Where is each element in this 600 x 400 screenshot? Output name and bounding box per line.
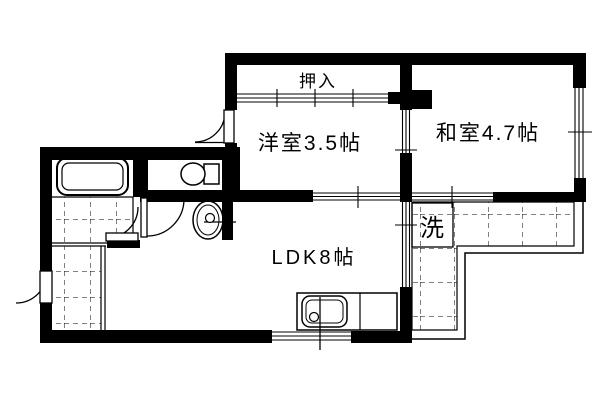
floorplan-svg: 押入 洋室3.5帖 和室4.7帖 LDK8帖 洗 <box>0 0 600 400</box>
room-label-closet: 押入 <box>299 72 337 91</box>
window-washitsu-east <box>568 88 592 178</box>
floorplan-page: 押入 洋室3.5帖 和室4.7帖 LDK8帖 洗 <box>0 0 600 400</box>
window-yoshitsu-south <box>313 186 400 208</box>
washroom-door <box>141 198 184 237</box>
room-label-japanese-room: 和室4.7帖 <box>436 122 540 145</box>
genkan-entrance-door <box>16 271 52 303</box>
toilet-icon <box>181 163 219 185</box>
yoshitsu-entry-door <box>195 110 234 143</box>
room-label-laundry: 洗 <box>420 215 444 242</box>
genkan-tiled-floor <box>52 246 106 330</box>
bathtub-icon <box>57 158 128 195</box>
closet-sliding-door <box>237 89 388 107</box>
room-label-ldk: LDK8帖 <box>271 246 356 269</box>
window-kitchen-south <box>272 332 351 340</box>
room-label-western-room: 洋室3.5帖 <box>258 132 362 155</box>
partition-yoshitsu-washitsu <box>395 110 417 153</box>
